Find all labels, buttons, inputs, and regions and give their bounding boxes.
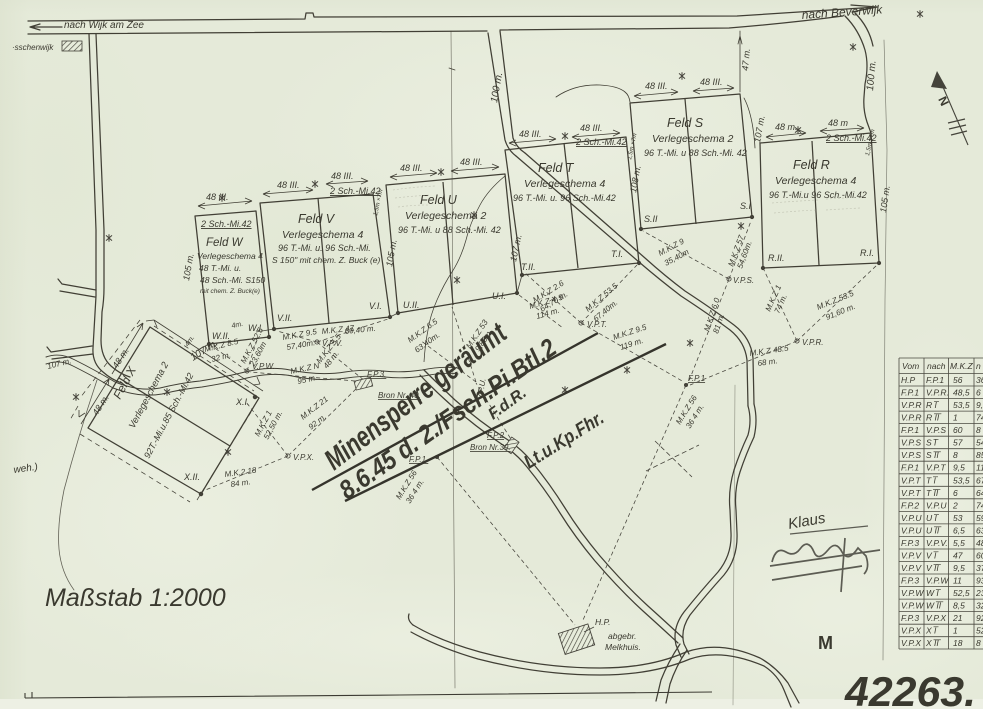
svg-text:F.P.1: F.P.1 bbox=[901, 463, 919, 473]
svg-text:96 T.-Mi. u. 96 Sch.-Mi.: 96 T.-Mi. u. 96 Sch.-Mi. bbox=[278, 243, 371, 253]
svg-text:V.I.: V.I. bbox=[369, 301, 382, 311]
svg-text:48 III.: 48 III. bbox=[331, 171, 354, 181]
svg-text:60,: 60, bbox=[976, 551, 983, 561]
svg-text:W I̅I̅: W I̅I̅ bbox=[926, 601, 944, 611]
svg-text:8: 8 bbox=[976, 425, 981, 435]
svg-text:V.P.T: V.P.T bbox=[901, 488, 921, 498]
svg-text:V.P.U: V.P.U bbox=[926, 500, 947, 510]
svg-text:Verlegeschema 4: Verlegeschema 4 bbox=[524, 178, 605, 190]
svg-text:X.I.: X.I. bbox=[235, 397, 250, 407]
svg-text:F.P.3: F.P.3 bbox=[901, 576, 919, 586]
svg-text:F.P.1: F.P.1 bbox=[926, 375, 944, 385]
svg-text:Verlegeschema 4: Verlegeschema 4 bbox=[197, 251, 263, 261]
svg-text:54: 54 bbox=[976, 438, 983, 448]
svg-text:48 T.-Mi. u.: 48 T.-Mi. u. bbox=[199, 263, 241, 273]
svg-text:Feld S: Feld S bbox=[667, 116, 704, 130]
svg-text:F.P.2: F.P.2 bbox=[487, 431, 505, 440]
svg-text:9,5: 9,5 bbox=[953, 563, 965, 573]
svg-text:Vom: Vom bbox=[902, 361, 919, 371]
svg-text:M.K.Z: M.K.Z bbox=[950, 361, 973, 371]
svg-text:abgebr.: abgebr. bbox=[608, 631, 637, 641]
svg-text:53: 53 bbox=[953, 513, 963, 523]
svg-text:V.P.W: V.P.W bbox=[926, 576, 949, 586]
svg-text:74: 74 bbox=[976, 413, 983, 423]
svg-text:F.P.2: F.P.2 bbox=[901, 500, 919, 510]
svg-text:V.P.X.: V.P.X. bbox=[293, 453, 314, 462]
svg-text:mit chem. Z. Buck(e): mit chem. Z. Buck(e) bbox=[200, 288, 260, 295]
svg-text:F.P.3: F.P.3 bbox=[901, 613, 919, 623]
svg-text:2 Sch.-Mi.42: 2 Sch.-Mi.42 bbox=[575, 137, 627, 147]
svg-text:42263.: 42263. bbox=[844, 668, 976, 709]
svg-text:nach Wijk am Zee: nach Wijk am Zee bbox=[64, 20, 144, 31]
svg-text:F.P.1: F.P.1 bbox=[688, 374, 705, 383]
svg-text:F.P.1: F.P.1 bbox=[901, 425, 919, 435]
svg-text:T.II.: T.II. bbox=[521, 262, 536, 272]
svg-text:56: 56 bbox=[953, 375, 963, 385]
svg-text:T.I.: T.I. bbox=[611, 249, 623, 259]
svg-text:S.II: S.II bbox=[644, 214, 658, 224]
svg-text:V.P.X: V.P.X bbox=[901, 638, 921, 648]
svg-text:F.P.3: F.P.3 bbox=[901, 538, 919, 548]
svg-text:23: 23 bbox=[975, 588, 983, 598]
svg-text:V.P.U: V.P.U bbox=[901, 513, 922, 523]
svg-text:48: 48 bbox=[976, 538, 983, 548]
svg-text:48 Sch.-Mi. S150: 48 Sch.-Mi. S150 bbox=[200, 275, 265, 285]
svg-text:96 T.-Mi. u 88 Sch.-Mi. 42: 96 T.-Mi. u 88 Sch.-Mi. 42 bbox=[398, 225, 501, 235]
svg-text:48,5: 48,5 bbox=[953, 388, 970, 398]
svg-text:53,5: 53,5 bbox=[953, 475, 970, 485]
svg-text:11: 11 bbox=[976, 463, 983, 473]
svg-text:64: 64 bbox=[976, 488, 983, 498]
svg-text:8: 8 bbox=[976, 638, 981, 648]
svg-text:H.P.: H.P. bbox=[595, 617, 610, 627]
svg-text:2 Sch.-Mi.42: 2 Sch.-Mi.42 bbox=[200, 219, 252, 229]
svg-text:48 m: 48 m bbox=[828, 118, 849, 128]
svg-text:V.P.S: V.P.S bbox=[926, 425, 946, 435]
svg-text:R.II.: R.II. bbox=[768, 253, 785, 263]
svg-text:92: 92 bbox=[976, 613, 983, 623]
svg-text:1: 1 bbox=[953, 626, 958, 636]
svg-text:Verlegeschema 4: Verlegeschema 4 bbox=[282, 229, 363, 241]
svg-text:Feld U: Feld U bbox=[420, 193, 458, 207]
svg-text:48 III.: 48 III. bbox=[645, 81, 668, 91]
svg-text:36: 36 bbox=[976, 375, 983, 385]
svg-text:V.P.T: V.P.T bbox=[926, 463, 946, 473]
svg-text:6: 6 bbox=[953, 488, 958, 498]
svg-text:X.II.: X.II. bbox=[183, 472, 200, 482]
svg-text:5,5: 5,5 bbox=[953, 538, 965, 548]
svg-text:48 III.: 48 III. bbox=[700, 77, 723, 87]
svg-text:Verlegeschema 4: Verlegeschema 4 bbox=[775, 175, 856, 187]
svg-text:96 T.-Mi. u. 96 Sch.-Mi.42: 96 T.-Mi. u. 96 Sch.-Mi.42 bbox=[513, 193, 616, 203]
svg-text:Verlegeschema 2: Verlegeschema 2 bbox=[652, 133, 733, 145]
svg-text:V.P.W: V.P.W bbox=[901, 588, 924, 598]
svg-text:M: M bbox=[818, 633, 833, 653]
svg-text:47: 47 bbox=[953, 551, 963, 561]
svg-text:6: 6 bbox=[976, 388, 981, 398]
svg-text:Melkhuis.: Melkhuis. bbox=[605, 642, 641, 652]
svg-text:6,5: 6,5 bbox=[953, 525, 965, 535]
svg-text:96 T.-Mi.u 96 Sch.-Mi.42: 96 T.-Mi.u 96 Sch.-Mi.42 bbox=[769, 190, 867, 200]
svg-text:U.II.: U.II. bbox=[403, 300, 420, 310]
svg-text:9,5: 9,5 bbox=[953, 463, 965, 473]
svg-text:9,: 9, bbox=[976, 400, 983, 410]
svg-text:48 III.: 48 III. bbox=[460, 157, 483, 167]
svg-text:32: 32 bbox=[976, 601, 983, 611]
svg-text:1: 1 bbox=[953, 413, 958, 423]
svg-text:48 III.: 48 III. bbox=[580, 123, 603, 133]
svg-text:18: 18 bbox=[953, 638, 963, 648]
svg-text:V.P.R.: V.P.R. bbox=[926, 388, 949, 398]
svg-text:48 III.: 48 III. bbox=[206, 192, 229, 202]
svg-text:Feld R: Feld R bbox=[793, 158, 830, 172]
svg-text:60: 60 bbox=[953, 425, 963, 435]
svg-text:48 m.: 48 m. bbox=[775, 122, 798, 132]
svg-text:8: 8 bbox=[953, 450, 958, 460]
svg-text:V.P.S.: V.P.S. bbox=[733, 276, 754, 285]
svg-text:74: 74 bbox=[976, 500, 983, 510]
svg-text:57: 57 bbox=[953, 438, 963, 448]
svg-text:U.I.: U.I. bbox=[492, 291, 506, 301]
svg-text:59: 59 bbox=[976, 513, 983, 523]
svg-text:V.P.W: V.P.W bbox=[901, 601, 924, 611]
svg-text:·sschenwijk: ·sschenwijk bbox=[12, 43, 54, 52]
svg-text:H.P: H.P bbox=[901, 375, 916, 385]
svg-text:V.II.: V.II. bbox=[277, 313, 292, 323]
svg-text:nach: nach bbox=[927, 361, 946, 371]
svg-text:63: 63 bbox=[976, 525, 983, 535]
svg-text:R.I.: R.I. bbox=[860, 248, 874, 258]
svg-text:96 T.-Mi. u 88 Sch.-Mi. 42: 96 T.-Mi. u 88 Sch.-Mi. 42 bbox=[644, 148, 747, 158]
svg-text:52,: 52, bbox=[976, 626, 983, 636]
svg-text:Feld W: Feld W bbox=[206, 237, 244, 249]
svg-text:8,5: 8,5 bbox=[953, 601, 965, 611]
svg-text:Feld V: Feld V bbox=[298, 212, 336, 226]
svg-text:21: 21 bbox=[952, 613, 963, 623]
svg-text:53,5: 53,5 bbox=[953, 400, 970, 410]
svg-text:Bron Nr.39.: Bron Nr.39. bbox=[470, 443, 511, 452]
svg-text:V.P.T: V.P.T bbox=[901, 475, 921, 485]
svg-text:47 m.: 47 m. bbox=[740, 48, 752, 71]
svg-text:V.P.R: V.P.R bbox=[901, 413, 921, 423]
svg-text:V.P.R.: V.P.R. bbox=[802, 338, 824, 347]
svg-text:Maßstab 1:2000: Maßstab 1:2000 bbox=[45, 584, 226, 612]
svg-text:85: 85 bbox=[976, 450, 983, 460]
svg-text:37,: 37, bbox=[976, 563, 983, 573]
svg-text:93: 93 bbox=[976, 576, 983, 586]
svg-text:V.P.U: V.P.U bbox=[901, 525, 922, 535]
svg-text:48 III.: 48 III. bbox=[519, 129, 542, 139]
svg-text:Feld T: Feld T bbox=[538, 161, 575, 175]
svg-text:V.P.S: V.P.S bbox=[901, 438, 921, 448]
svg-text:V.P.X: V.P.X bbox=[901, 626, 921, 636]
svg-text:48 III.: 48 III. bbox=[400, 163, 423, 173]
svg-text:S 150" mit chem. Z. Buck (e): S 150" mit chem. Z. Buck (e) bbox=[272, 255, 381, 265]
svg-text:V.P.V.: V.P.V. bbox=[926, 538, 948, 548]
svg-text:V.P.S: V.P.S bbox=[901, 450, 921, 460]
svg-text:2: 2 bbox=[952, 500, 958, 510]
svg-text:S.I: S.I bbox=[740, 201, 752, 211]
svg-text:V.P.V: V.P.V bbox=[901, 551, 922, 561]
svg-text:2 Sch.-Mi.42: 2 Sch.-Mi.42 bbox=[329, 186, 381, 196]
svg-text:V.P.V: V.P.V bbox=[901, 563, 922, 573]
svg-text:n: n bbox=[976, 361, 981, 371]
svg-text:V.P.X: V.P.X bbox=[926, 613, 946, 623]
svg-text:48 III.: 48 III. bbox=[277, 180, 300, 190]
svg-text:F.P.1: F.P.1 bbox=[901, 388, 919, 398]
svg-text:F.P.3.: F.P.3. bbox=[367, 370, 386, 379]
svg-text:11: 11 bbox=[953, 576, 962, 586]
svg-text:67: 67 bbox=[976, 475, 983, 485]
svg-text:V.P.R: V.P.R bbox=[901, 400, 921, 410]
svg-text:52,5: 52,5 bbox=[953, 588, 970, 598]
